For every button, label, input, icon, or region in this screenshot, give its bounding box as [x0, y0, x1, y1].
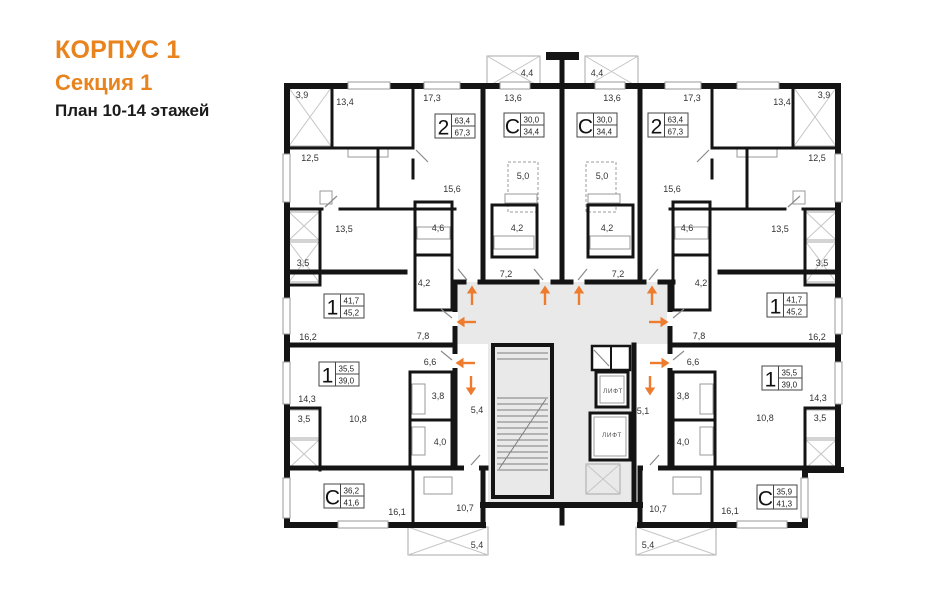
entry-arrow-icon — [466, 376, 476, 396]
entry-arrow-icon — [456, 358, 476, 368]
apartment-badge: 135,539,0 — [762, 366, 802, 392]
area-total: 34,4 — [597, 128, 613, 137]
dimension-label: 4,2 — [601, 223, 614, 233]
dimension-label: 5,4 — [471, 540, 484, 550]
area-total: 45,2 — [787, 308, 803, 317]
dimension-label: 13,6 — [504, 93, 522, 103]
dimension-label: 16,2 — [299, 332, 317, 342]
dimension-label: 12,5 — [301, 153, 319, 163]
dimension-label: 5,0 — [596, 171, 609, 181]
dimension-label: 5,4 — [471, 405, 484, 415]
dimension-label: 10,7 — [456, 503, 474, 513]
area-living: 41,7 — [787, 296, 803, 305]
dimension-label: 16,1 — [721, 506, 739, 516]
apartment-badge: 135,539,0 — [319, 362, 359, 388]
dimension-label: 3,8 — [432, 391, 445, 401]
dimension-label: 13,4 — [773, 97, 791, 107]
dimension-label: 15,6 — [663, 184, 681, 194]
area-total: 34,4 — [524, 128, 540, 137]
dimension-label: 4,0 — [434, 437, 447, 447]
area-total: 41,6 — [344, 499, 360, 508]
entry-arrow-icon — [650, 358, 670, 368]
dimension-label: 13,5 — [771, 224, 789, 234]
apartment-badge: С35,941,3 — [757, 485, 797, 511]
dimension-label: 5,0 — [517, 171, 530, 181]
dimension-label: 13,4 — [336, 97, 354, 107]
area-living: 35,9 — [777, 488, 793, 497]
dimension-label: 3,5 — [814, 413, 827, 423]
lift-label: ЛИФТ — [603, 388, 623, 395]
dimension-label: 3,9 — [818, 90, 831, 100]
apartment-badge: С36,241,6 — [324, 484, 364, 510]
dimension-label: 10,8 — [349, 414, 367, 424]
dimension-label: 3,5 — [297, 258, 310, 268]
apartment-badge: 263,467,3 — [435, 114, 475, 140]
dimension-label: 3,9 — [296, 90, 309, 100]
dimension-label: 17,3 — [423, 93, 441, 103]
dimension-label: 4,4 — [591, 68, 604, 78]
dimension-label: 16,1 — [388, 507, 406, 517]
apartment-type: С — [758, 488, 773, 511]
dimension-label: 6,6 — [687, 357, 700, 367]
apartment-type: 1 — [327, 297, 339, 320]
entry-arrow-icon — [645, 376, 655, 396]
dimension-label: 4,4 — [521, 68, 534, 78]
area-total: 45,2 — [344, 309, 360, 318]
dimension-label: 7,8 — [693, 331, 706, 341]
area-living: 63,4 — [455, 117, 471, 126]
apartment-badge: С30,034,4 — [504, 113, 544, 139]
dimension-label: 3,5 — [298, 414, 311, 424]
dimension-label: 4,6 — [432, 223, 445, 233]
area-living: 35,5 — [339, 365, 355, 374]
dimension-label: 7,2 — [612, 269, 625, 279]
apartment-type: С — [325, 487, 340, 510]
dimension-label: 6,6 — [424, 357, 437, 367]
dimension-label: 14,3 — [298, 394, 316, 404]
area-total: 41,3 — [777, 500, 793, 509]
floor-plan: 263,467,3С30,034,4С30,034,4263,467,3141,… — [0, 0, 941, 600]
area-total: 39,0 — [339, 377, 355, 386]
area-living: 30,0 — [597, 116, 613, 125]
dimension-label: 4,2 — [695, 278, 708, 288]
dimension-label: 7,2 — [500, 269, 513, 279]
dimension-label: 14,3 — [809, 393, 827, 403]
dimension-label: 10,7 — [649, 504, 667, 514]
dimension-label: 15,6 — [443, 184, 461, 194]
apartment-badge: С30,034,4 — [577, 113, 617, 139]
apartment-badge: 141,745,2 — [324, 294, 364, 320]
apartment-type: 2 — [438, 117, 450, 140]
area-living: 36,2 — [344, 487, 360, 496]
dimension-label: 13,6 — [603, 93, 621, 103]
area-total: 39,0 — [782, 381, 798, 390]
apartment-type: 1 — [770, 296, 782, 319]
dimension-label: 7,8 — [417, 331, 430, 341]
area-total: 67,3 — [668, 128, 684, 137]
floor-plan-page: КОРПУС 1 Секция 1 План 10-14 этажей — [0, 0, 941, 600]
apartment-type: С — [578, 116, 593, 139]
apartment-type: 2 — [651, 116, 663, 139]
area-total: 67,3 — [455, 129, 471, 138]
dimension-label: 4,2 — [418, 278, 431, 288]
dimension-label: 4,0 — [677, 437, 690, 447]
apartment-badge: 141,745,2 — [767, 293, 807, 319]
dimension-label: 4,6 — [681, 223, 694, 233]
dimension-label: 5,4 — [642, 540, 655, 550]
area-living: 41,7 — [344, 297, 360, 306]
apartment-type: 1 — [765, 369, 777, 392]
area-living: 35,5 — [782, 369, 798, 378]
area-living: 63,4 — [668, 116, 684, 125]
dimension-label: 3,5 — [816, 258, 829, 268]
lift-label: ЛИФТ — [602, 432, 622, 439]
dimension-label: 4,2 — [511, 223, 524, 233]
dimension-label: 3,8 — [677, 391, 690, 401]
dimension-label: 10,8 — [756, 413, 774, 423]
dimension-label: 5,1 — [637, 406, 650, 416]
dimension-label: 13,5 — [335, 224, 353, 234]
apartment-badge: 263,467,3 — [648, 113, 688, 139]
dimension-label: 16,2 — [808, 332, 826, 342]
apartment-type: 1 — [322, 365, 334, 388]
apartment-type: С — [505, 116, 520, 139]
area-living: 30,0 — [524, 116, 540, 125]
dimension-label: 12,5 — [808, 153, 826, 163]
dimension-label: 17,3 — [683, 93, 701, 103]
